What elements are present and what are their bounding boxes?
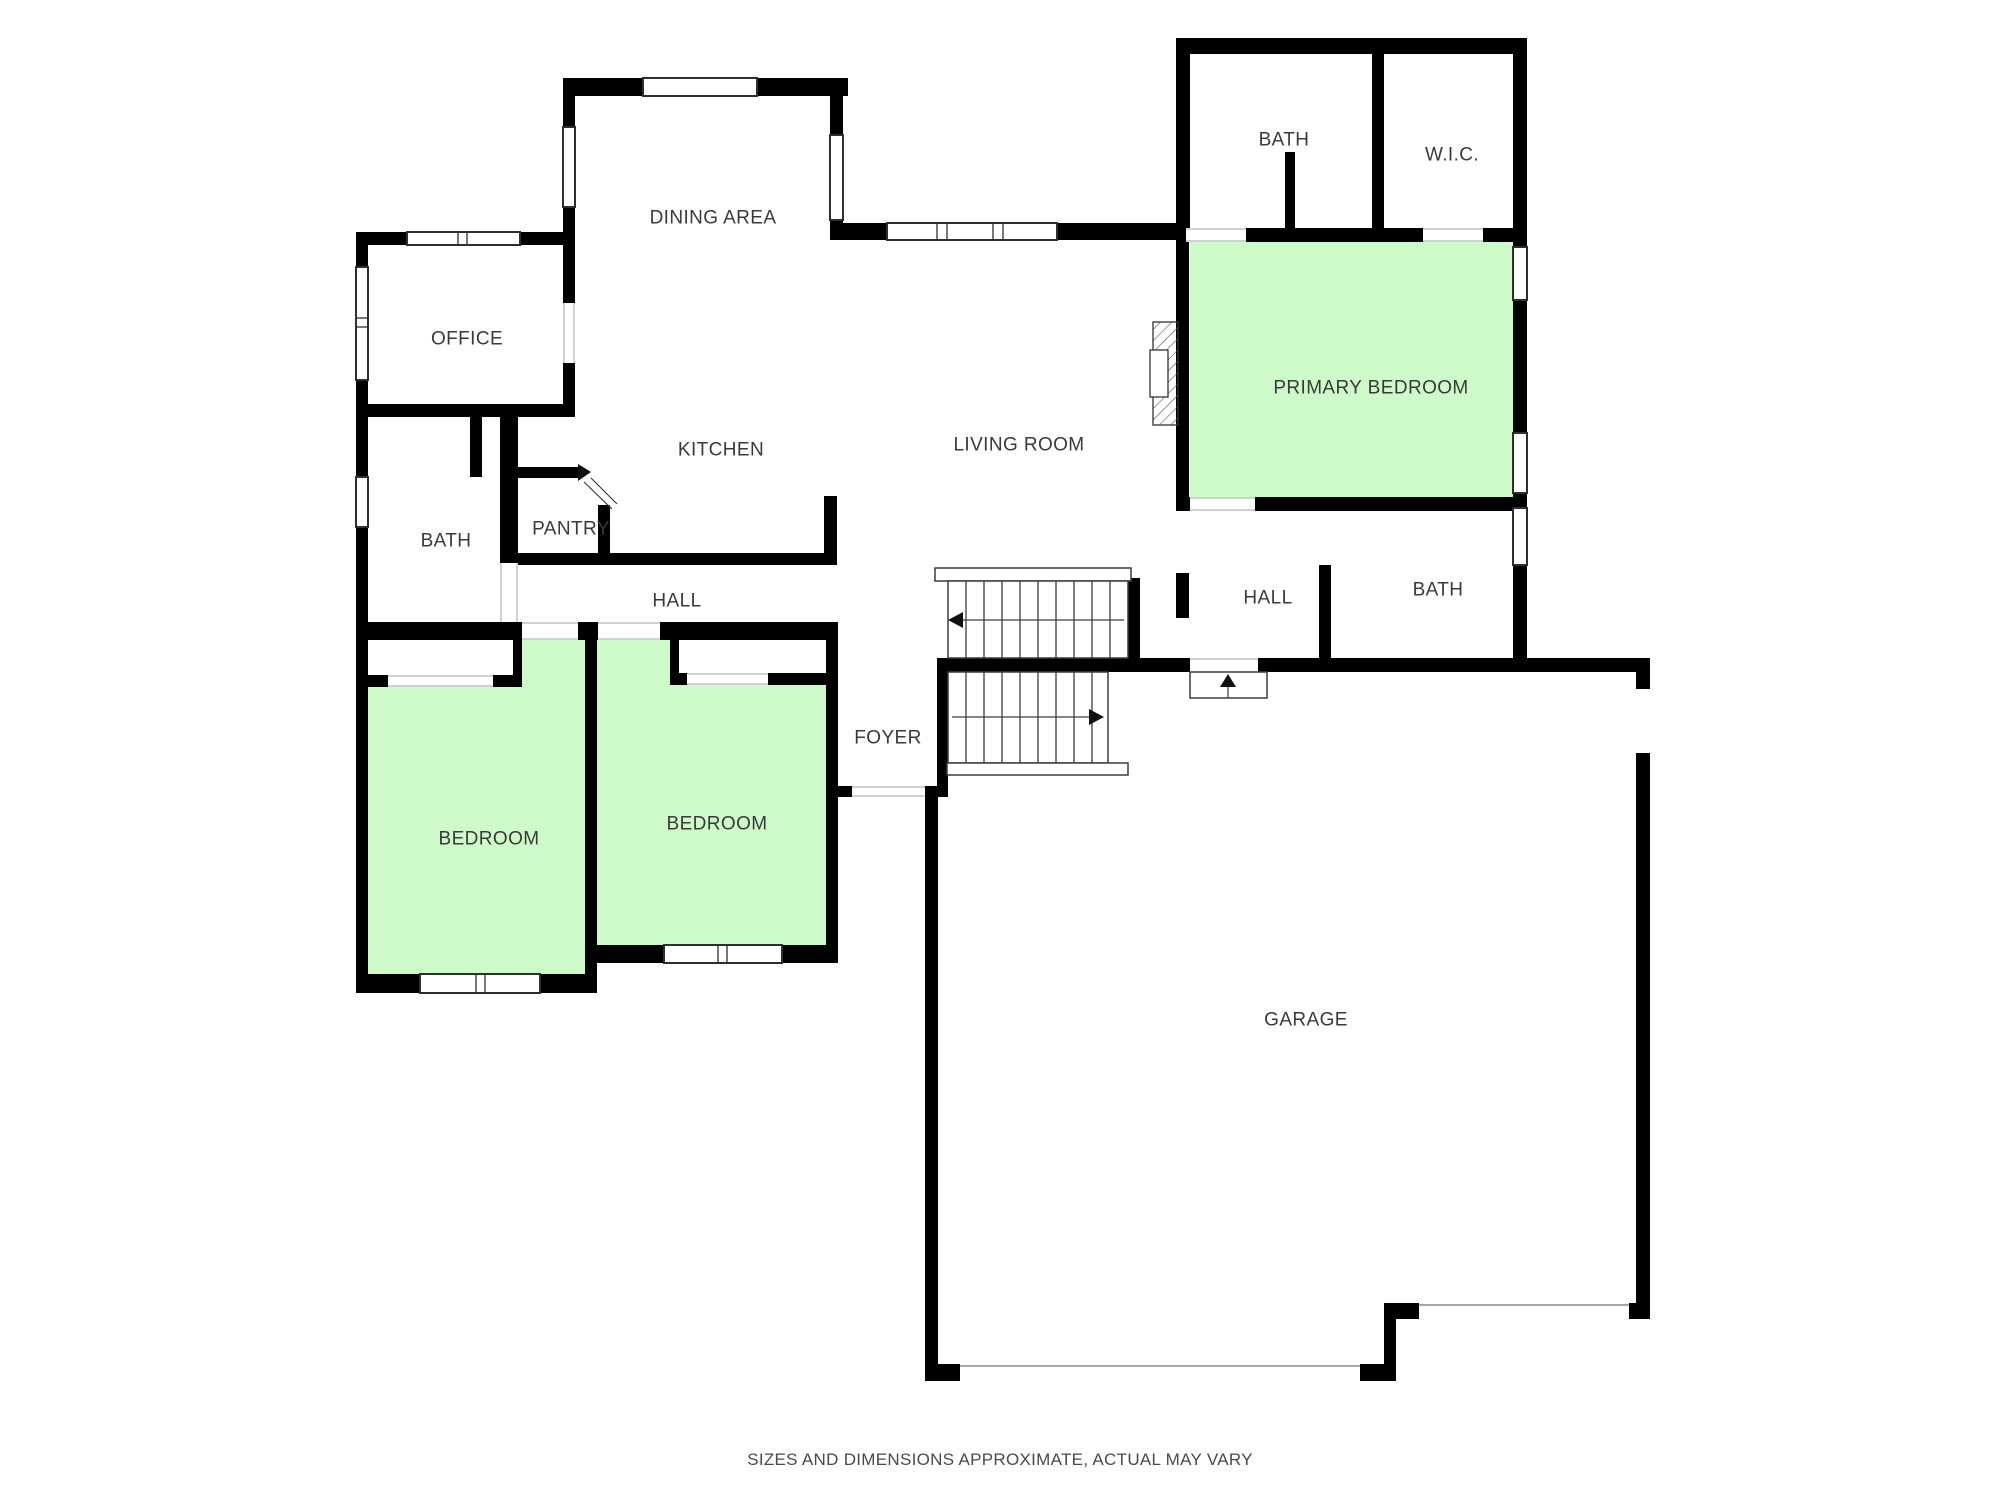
room-label-hall-right: HALL <box>1243 589 1292 608</box>
window-office-left <box>356 267 368 380</box>
door-bedroom-right <box>598 622 660 640</box>
room-label-bath-left: BATH <box>421 532 472 551</box>
door-hall-right <box>1190 658 1258 672</box>
closet-right <box>679 640 826 673</box>
room-label-hall-left: HALL <box>652 592 701 611</box>
stair-bottom-rail <box>947 763 1128 775</box>
room-label-bath-right: BATH <box>1413 581 1464 600</box>
door-bath-top <box>1186 228 1246 242</box>
window-dining-right <box>830 135 843 220</box>
room-label-garage: GARAGE <box>1264 1011 1348 1030</box>
window-bath-left <box>356 477 368 527</box>
door-primary-bedroom <box>1190 497 1255 511</box>
window-living-room <box>887 223 1057 240</box>
window-office-top <box>407 232 520 245</box>
door-office <box>563 303 575 363</box>
pantry-door <box>578 464 617 509</box>
closet-left <box>368 640 513 675</box>
door-wic <box>1423 228 1483 242</box>
window-bath-right <box>1513 508 1527 565</box>
highlighted-rooms <box>368 240 1513 974</box>
disclaimer-text: SIZES AND DIMENSIONS APPROXIMATE, ACTUAL… <box>0 1450 2000 1470</box>
window-dining-top <box>643 78 757 96</box>
room-bedroom-left <box>368 640 585 974</box>
window-primary-2 <box>1513 433 1527 493</box>
door-closet-left <box>388 675 493 687</box>
room-label-wic: W.I.C. <box>1425 146 1479 165</box>
room-label-living-room: LIVING ROOM <box>953 436 1084 455</box>
room-label-bedroom-left: BEDROOM <box>439 830 540 849</box>
window-bedroom-right <box>664 945 782 963</box>
floor-plan: DINING AREA OFFICE KITCHEN LIVING ROOM B… <box>0 0 2000 1500</box>
floor-plan-drawing <box>0 0 2000 1500</box>
staircase <box>935 568 1267 775</box>
pantry-door-tip <box>578 464 591 481</box>
garage-service-door <box>1636 689 1650 753</box>
window-dining-left <box>563 127 575 207</box>
stair-top-landing <box>935 568 1131 581</box>
fireplace-opening <box>1150 350 1168 397</box>
front-door <box>852 786 925 797</box>
room-label-bedroom-right: BEDROOM <box>667 815 768 834</box>
room-label-office: OFFICE <box>431 330 503 349</box>
door-closet-right <box>687 673 768 685</box>
room-primary-bedroom <box>1190 240 1513 497</box>
room-label-bath-top: BATH <box>1259 131 1310 150</box>
room-label-dining-area: DINING AREA <box>650 209 777 228</box>
room-bedroom-right <box>597 640 826 945</box>
room-label-pantry: PANTRY <box>532 520 610 539</box>
door-bedroom-left <box>522 622 578 640</box>
room-label-primary-bedroom: PRIMARY BEDROOM <box>1273 379 1468 398</box>
room-label-foyer: FOYER <box>854 729 921 748</box>
window-bedroom-left <box>420 974 540 993</box>
door-bath-left <box>500 563 518 622</box>
fireplace <box>1150 322 1178 425</box>
window-primary-1 <box>1513 247 1527 300</box>
room-label-kitchen: KITCHEN <box>678 441 764 460</box>
